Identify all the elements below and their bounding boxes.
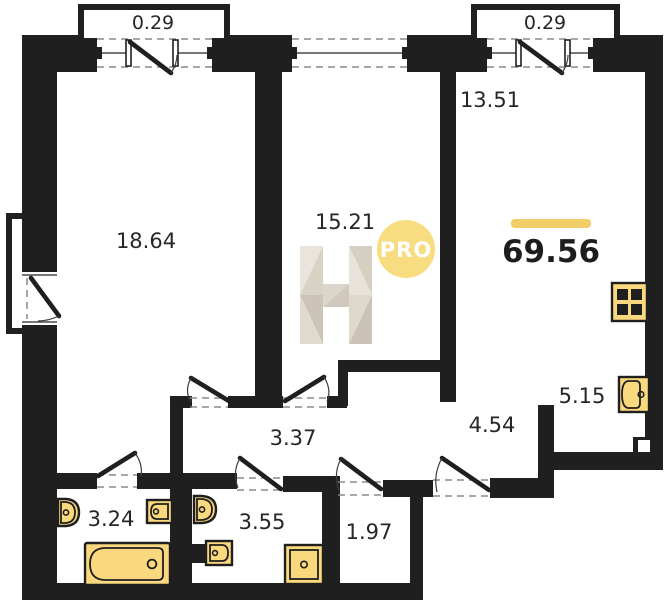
- toilet-icon-2: [194, 496, 216, 523]
- hallway-area-label: 4.54: [469, 413, 516, 437]
- pro-badge-label: PRO: [380, 238, 432, 262]
- door-bathroom: [97, 453, 141, 487]
- window-balcony-left: [92, 39, 217, 73]
- door-entrance: [433, 458, 490, 496]
- window-left-wall: [22, 275, 59, 322]
- toilet-icon: [58, 499, 79, 526]
- kitchen-living-area-label: 13.51: [460, 88, 520, 112]
- window-balcony-right: [482, 39, 598, 73]
- wash-basin-icon-2: [192, 541, 232, 565]
- door-bedroom: [188, 378, 230, 407]
- floor-plan: PRO 69.56 0.29 0.29 18.64 15.21 13.51 5.…: [0, 0, 667, 600]
- pro-badge: PRO: [377, 220, 435, 278]
- balcony-left-area-label: 0.29: [132, 12, 174, 34]
- total-area-label: 69.56: [502, 234, 600, 270]
- stove-icon: [612, 283, 647, 321]
- window-center: [287, 39, 412, 67]
- floor-plan-canvas: PRO 69.56 0.29 0.29 18.64 15.21 13.51 5.…: [0, 0, 667, 600]
- total-area-accent-bar: [511, 219, 591, 228]
- facade-pylon-outline: [9, 216, 22, 331]
- bathroom-area-label: 3.24: [88, 507, 135, 531]
- door-storage: [336, 459, 383, 495]
- kitchen-sink-icon: [619, 377, 649, 412]
- shower-tray-icon: [285, 545, 323, 584]
- bedroom-area-label: 18.64: [116, 229, 176, 253]
- kitchen-zone-area-label: 5.15: [559, 384, 606, 408]
- wash-basin-icon: [147, 500, 172, 523]
- bathtub-icon: [85, 543, 170, 585]
- door-shower-room: [235, 458, 283, 490]
- corridor-area-label: 3.37: [270, 426, 317, 450]
- h-logo-watermark: [300, 246, 372, 344]
- storage-area-label: 1.97: [346, 520, 393, 544]
- door-room: [283, 377, 329, 407]
- balcony-right-area-label: 0.29: [524, 12, 566, 34]
- room-area-label: 15.21: [315, 210, 375, 234]
- shower-room-area-label: 3.55: [239, 510, 286, 534]
- total-area: 69.56: [502, 219, 600, 270]
